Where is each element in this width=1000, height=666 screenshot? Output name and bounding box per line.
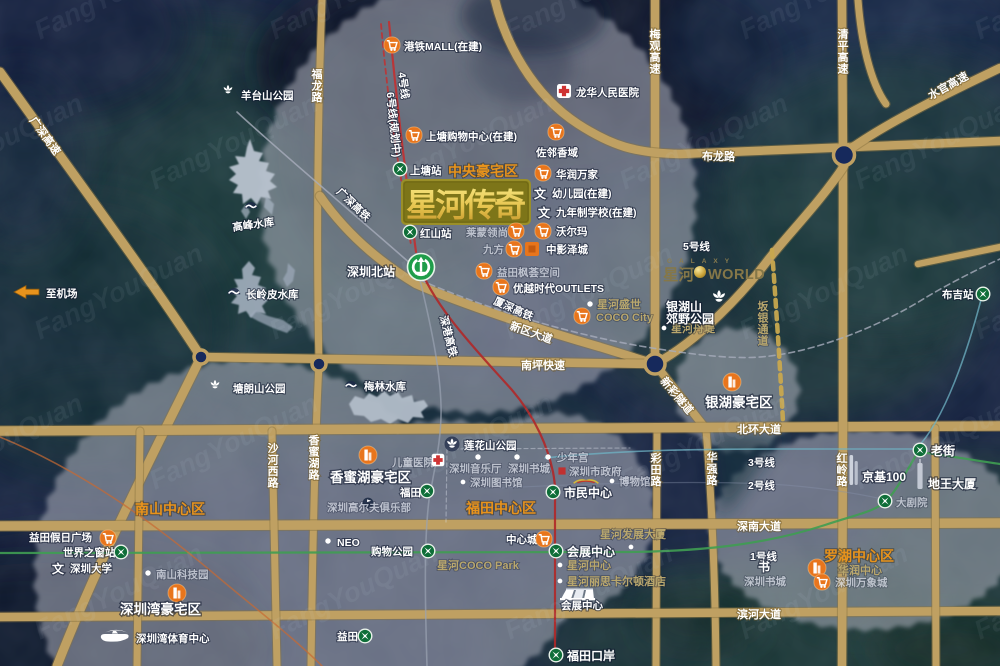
svg-text:3号线: 3号线 [748,456,775,469]
svg-text:深南大道: 深南大道 [737,519,781,533]
svg-text:南山科技园: 南山科技园 [156,568,209,581]
svg-text:文: 文 [52,561,65,576]
svg-text:深圳高尔夫俱乐部: 深圳高尔夫俱乐部 [327,501,411,514]
svg-text:南坪快速: 南坪快速 [521,358,565,372]
svg-text:福田: 福田 [399,486,421,499]
svg-text:长岭皮水库: 长岭皮水库 [246,288,299,301]
svg-text:梅观高速: 梅观高速 [650,27,661,76]
svg-text:深圳图书馆: 深圳图书馆 [470,476,523,489]
svg-text:沃尔玛: 沃尔玛 [556,225,588,238]
svg-text:南山中心区: 南山中心区 [135,501,205,517]
svg-text:2号线: 2号线 [748,479,775,492]
svg-text:京基100: 京基100 [862,469,906,484]
svg-text:龙华人民医院: 龙华人民医院 [575,86,639,99]
svg-text:莱蒙领尚: 莱蒙领尚 [465,226,508,239]
svg-text:深圳万象城: 深圳万象城 [835,576,888,589]
svg-text:布龙路: 布龙路 [702,149,736,163]
svg-text:中心城: 中心城 [506,533,538,546]
svg-text:至机场: 至机场 [46,287,78,300]
svg-text:清平高速: 清平高速 [838,27,849,76]
svg-text:星河COCO Park: 星河COCO Park [437,558,520,572]
svg-text:沙河西路: 沙河西路 [268,442,280,490]
svg-text:GALAXY: GALAXY [667,258,736,265]
svg-text:中央豪宅区: 中央豪宅区 [448,163,518,179]
svg-text:上塘站: 上塘站 [410,164,442,177]
svg-text:星河丽思卡尔顿酒店: 星河丽思卡尔顿酒店 [567,574,666,588]
svg-text:塘朗山公园: 塘朗山公园 [233,382,286,395]
svg-text:博物馆: 博物馆 [619,475,651,488]
svg-text:北环大道: 北环大道 [737,422,781,436]
svg-text:深圳书城: 深圳书城 [744,575,786,588]
svg-text:文: 文 [534,186,547,201]
svg-text:幼儿园(在建): 幼儿园(在建) [552,187,612,200]
svg-text:购物公园: 购物公园 [371,545,413,558]
svg-text:星河发展大厦: 星河发展大厦 [600,527,667,541]
svg-text:世界之窗站: 世界之窗站 [63,546,116,559]
svg-text:NEO: NEO [337,537,360,549]
svg-text:益田枫荟空间: 益田枫荟空间 [497,266,560,279]
svg-text:星河盛世: 星河盛世 [597,297,641,311]
svg-text:深圳大学: 深圳大学 [70,562,112,575]
svg-text:深圳音乐厅: 深圳音乐厅 [449,462,502,475]
svg-text:星河: 星河 [663,265,695,284]
svg-text:华润万家: 华润万家 [556,168,598,181]
svg-text:彩田路: 彩田路 [650,451,663,488]
svg-text:华润中心: 华润中心 [838,563,882,577]
svg-text:地王大厦: 地王大厦 [928,476,977,491]
svg-text:少年宫: 少年宫 [556,451,589,464]
svg-text:会展中心: 会展中心 [567,544,615,559]
svg-text:深圳湾豪宅区: 深圳湾豪宅区 [120,601,201,617]
svg-text:香蜜湖豪宅区: 香蜜湖豪宅区 [329,469,411,485]
svg-text:布吉站: 布吉站 [942,288,974,301]
svg-text:九方: 九方 [482,243,504,256]
svg-text:书: 书 [758,559,770,574]
svg-text:红岭路: 红岭路 [837,451,849,488]
svg-text:莲花山公园: 莲花山公园 [464,439,517,452]
svg-text:深圳湾体育中心: 深圳湾体育中心 [136,632,210,645]
svg-text:星河传奇: 星河传奇 [406,187,526,223]
svg-text:市民中心: 市民中心 [564,485,612,500]
svg-text:儿童医院: 儿童医院 [391,456,434,469]
svg-text:华强路: 华强路 [707,450,719,487]
svg-text:会展中心: 会展中心 [561,599,603,612]
svg-text:优越时代OUTLETS: 优越时代OUTLETS [513,282,604,295]
svg-text:坂银通道: 坂银通道 [758,299,770,348]
svg-text:COCO City: COCO City [596,312,654,324]
svg-text:郊野公园: 郊野公园 [666,311,714,326]
svg-text:文: 文 [538,205,551,220]
svg-text:益田: 益田 [337,630,358,643]
svg-text:益田假日广场: 益田假日广场 [29,531,92,544]
svg-text:梅林水库: 梅林水库 [364,380,406,393]
svg-text:5号线: 5号线 [683,240,710,253]
svg-text:红山站: 红山站 [420,227,452,240]
svg-text:福龙路: 福龙路 [311,67,324,104]
svg-text:港铁MALL(在建): 港铁MALL(在建) [404,40,482,53]
svg-text:银湖豪宅区: 银湖豪宅区 [705,394,773,410]
svg-text:大剧院: 大剧院 [896,496,928,509]
svg-text:中影泽城: 中影泽城 [546,243,588,256]
svg-text:深圳书城: 深圳书城 [508,462,550,475]
svg-text:福田中心区: 福田中心区 [465,500,536,516]
svg-text:滨河大道: 滨河大道 [737,607,781,621]
svg-text:佐邻香域: 佐邻香域 [535,146,578,159]
svg-text:上塘购物中心(在建): 上塘购物中心(在建) [426,130,517,143]
svg-text:老街: 老街 [931,443,955,458]
svg-text:罗湖中心区: 罗湖中心区 [824,548,894,564]
svg-text:深圳市政府: 深圳市政府 [569,465,622,478]
svg-text:深圳北站: 深圳北站 [347,264,395,279]
svg-text:WORLD: WORLD [708,267,765,283]
svg-text:香蜜湖路: 香蜜湖路 [308,433,321,482]
svg-text:福田口岸: 福田口岸 [566,648,615,663]
svg-text:九年制学校(在建): 九年制学校(在建) [555,206,637,219]
svg-text:羊台山公园: 羊台山公园 [241,89,294,102]
svg-text:星河中心: 星河中心 [567,558,611,572]
